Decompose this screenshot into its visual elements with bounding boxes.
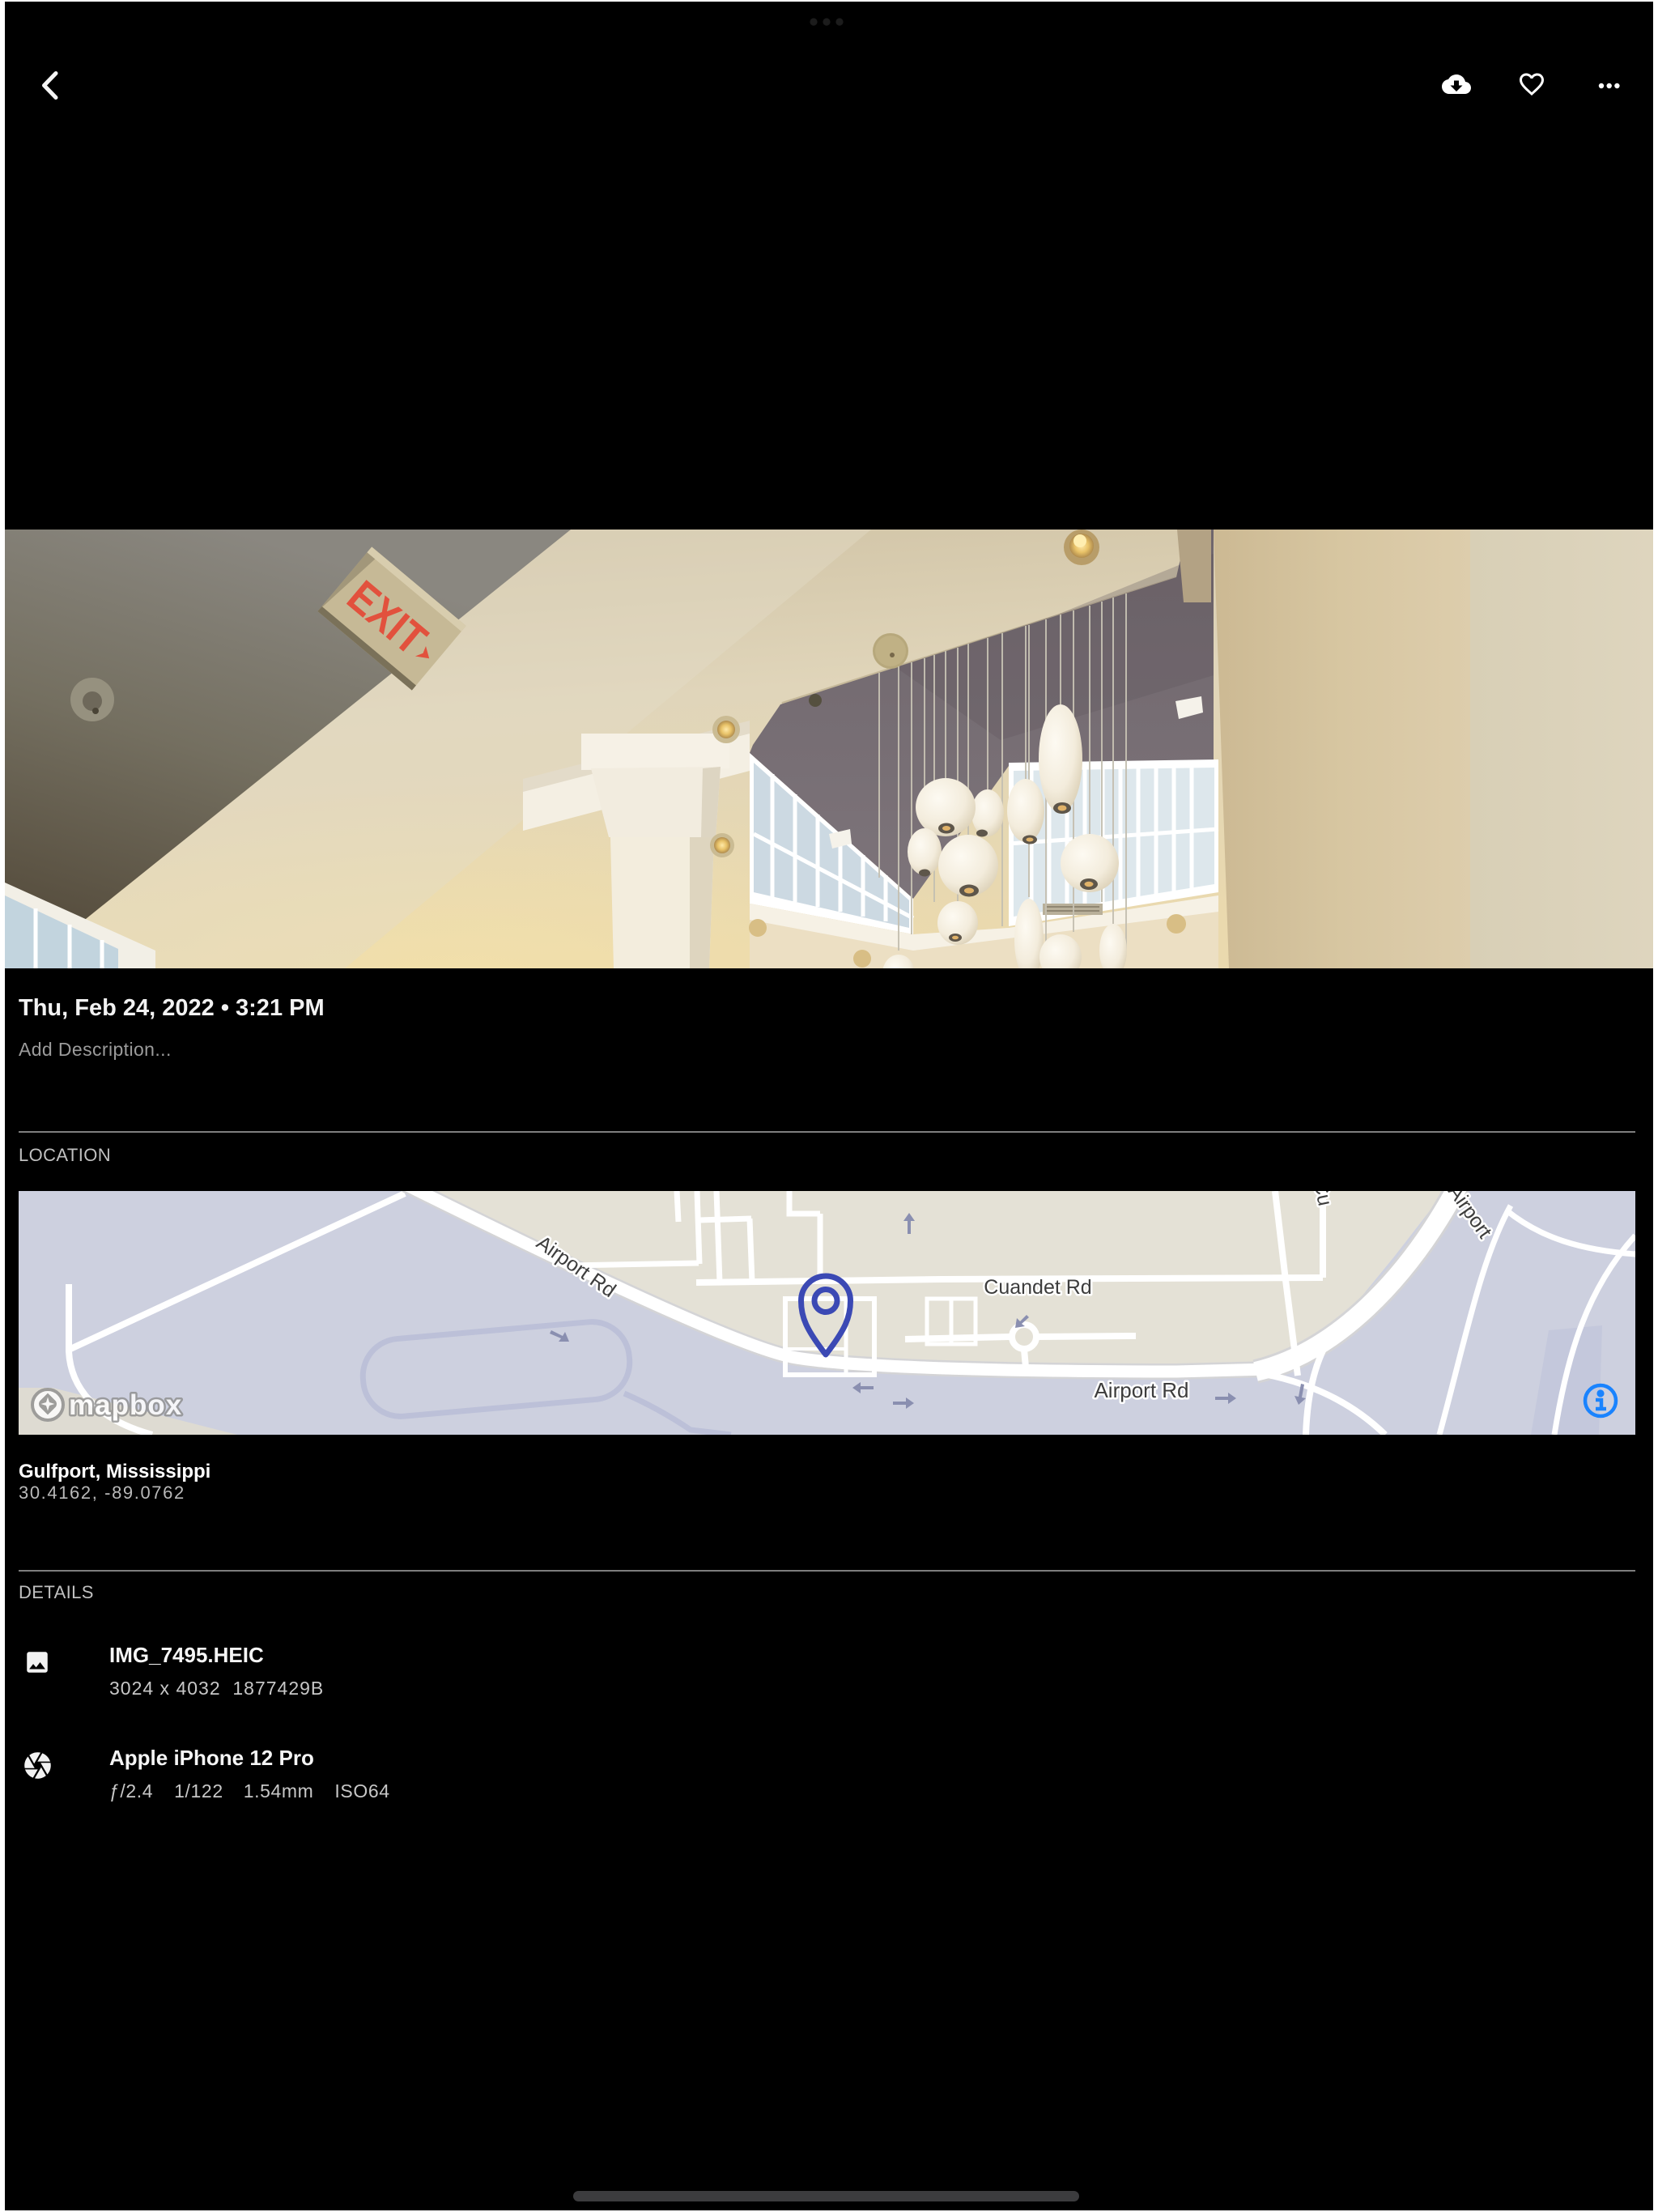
svg-text:Cuandet Rd: Cuandet Rd: [984, 1276, 1091, 1299]
svg-text:mapbox: mapbox: [69, 1389, 182, 1421]
svg-text:Airport Rd: Airport Rd: [1094, 1378, 1188, 1402]
